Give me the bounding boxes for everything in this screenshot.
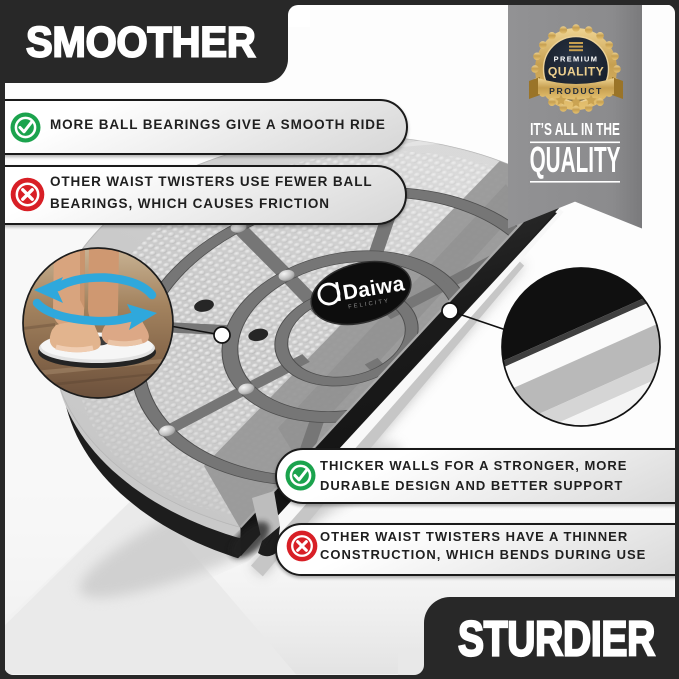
svg-text:PRODUCT: PRODUCT xyxy=(549,86,603,96)
svg-text:PREMIUM: PREMIUM xyxy=(554,54,599,63)
svg-text:QUALITY: QUALITY xyxy=(530,140,621,180)
svg-text:IT’S ALL IN THE: IT’S ALL IN THE xyxy=(530,119,620,139)
svg-text:QUALITY: QUALITY xyxy=(548,64,604,78)
